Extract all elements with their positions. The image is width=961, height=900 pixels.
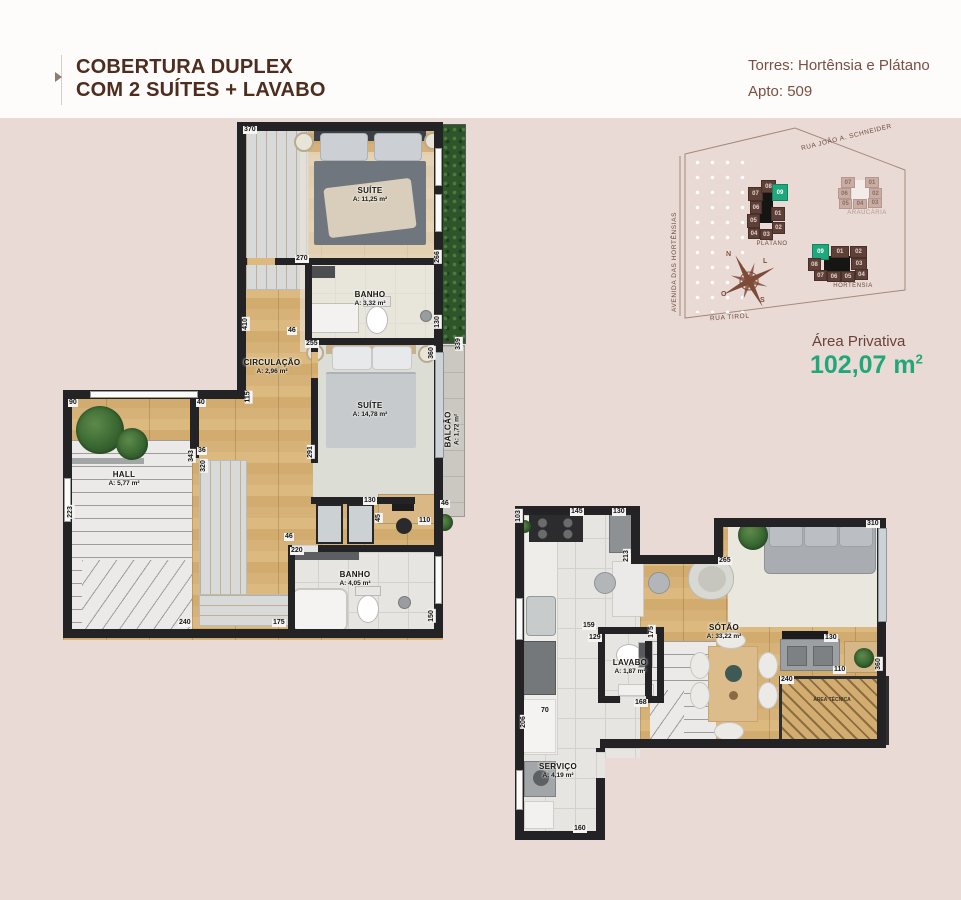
wardrobe-glass-panel (347, 504, 374, 544)
room-area: A: 1,72 m² (454, 394, 462, 464)
title-marker-arrow-icon (55, 72, 62, 82)
sofa (764, 520, 876, 574)
room-name: CIRCULAÇÃO (233, 358, 311, 368)
dim-label: 46 (287, 327, 297, 335)
dim-label: 310 (866, 520, 880, 528)
room-area: A: 4,05 m² (322, 580, 388, 588)
dim-label: 130 (612, 508, 626, 516)
dim-label: 115 (245, 390, 253, 403)
wall (600, 739, 886, 748)
room-area: A: 2,96 m² (233, 368, 311, 376)
platano-label: PLÁTANO (742, 241, 802, 247)
room-name: SUÍTE (330, 186, 410, 196)
door-opening (247, 258, 275, 265)
compass-rose-icon (718, 250, 780, 312)
dining-chair (690, 652, 710, 679)
room-name: SERVIÇO (526, 762, 590, 772)
room-label-servico: SERVIÇO A: 4,19 m² (526, 762, 590, 781)
banho2-shower-head (398, 596, 411, 609)
araucaria-label: ARAUCÁRIA (838, 210, 896, 216)
wall (288, 545, 295, 635)
room-area: A: 5,77 m² (92, 480, 156, 488)
dim-label: 129 (588, 634, 602, 642)
room-label-banho2: BANHO A: 4,05 m² (322, 570, 388, 589)
compass-s: S (760, 297, 765, 304)
map-unit-araucaria-07: 07 (841, 177, 855, 188)
room-name: BANHO (332, 290, 408, 300)
map-unit-platano-04: 04 (748, 228, 760, 239)
dim-label: 265 (718, 557, 732, 565)
map-unit-araucaria-01: 01 (865, 177, 879, 188)
room-area: A: 1,87 m² (597, 668, 663, 676)
map-unit-araucaria-04: 04 (853, 199, 867, 209)
dim-label: 240 (178, 619, 192, 627)
fruit-bowl (725, 665, 742, 682)
dim-label: 343 (188, 449, 196, 463)
map-unit-araucaria-06: 06 (838, 188, 851, 199)
dim-label: 240 (780, 676, 794, 684)
dim-label: 410 (242, 317, 250, 331)
dining-chair (758, 682, 778, 709)
dim-label: 168 (634, 699, 648, 707)
dim-label: 206 (520, 715, 528, 729)
dim-label: 110 (833, 666, 846, 674)
room-name: LAVABO (597, 658, 663, 668)
suite1-pillow (374, 133, 422, 161)
laundry-tank (524, 801, 554, 829)
dim-label: 45 (375, 513, 383, 523)
wall (714, 518, 886, 527)
suite2-bed (326, 342, 416, 446)
area-privativa-label: Área Privativa (812, 333, 905, 350)
dim-label: 255 (305, 340, 319, 348)
dim-label: 175 (272, 619, 286, 627)
room-name: HALL (92, 470, 156, 480)
dim-label: 360 (428, 346, 436, 360)
map-unit-hortensia-06: 06 (827, 271, 841, 282)
dim-label: 213 (623, 549, 631, 563)
room-label-suite1: SUÍTE A: 11,25 m² (330, 186, 410, 205)
dim-label: 270 (295, 255, 309, 263)
banho1-shower-drain (420, 310, 432, 322)
window (516, 598, 523, 640)
dim-label: 339 (455, 337, 463, 351)
dim-label: 40 (196, 399, 206, 407)
street-label-left: AVENIDA DAS HORTÊNSIAS (671, 212, 678, 312)
banho2-bathtub (292, 588, 348, 632)
suite1-pillow (320, 133, 368, 161)
room-label-banho1: BANHO A: 3,32 m² (332, 290, 408, 309)
room-label-sotao: SÓTÃO A: 33,22 m² (692, 623, 756, 642)
planter-greenery (440, 124, 466, 344)
wall (515, 831, 605, 840)
map-unit-platano-06: 06 (750, 201, 762, 214)
page-title-line1: COBERTURA DUPLEX (76, 56, 326, 79)
tv (782, 631, 828, 639)
side-table-plant (854, 648, 874, 668)
map-unit-platano-01: 01 (771, 207, 785, 221)
hall-plant (116, 428, 148, 460)
room-label-hall: HALL A: 5,77 m² (92, 470, 156, 489)
compass-o: O (721, 291, 726, 298)
room-area: A: 14,78 m² (331, 411, 409, 419)
stairs-upper-winder (82, 560, 192, 632)
map-unit-hortensia-05: 05 (841, 271, 855, 282)
dim-label: 159 (582, 622, 596, 630)
dim-label: 320 (200, 459, 208, 473)
kitchen-sink (526, 596, 556, 636)
page-title-line2: COM 2 SUÍTES + LAVABO (76, 79, 326, 102)
wall (305, 338, 439, 345)
dim-label: 36 (197, 447, 207, 455)
hortensia-label: HORTÊNSIA (822, 283, 884, 289)
room-label-circulacao: CIRCULAÇÃO A: 2,96 m² (233, 358, 311, 377)
dim-label: 145 (570, 508, 584, 516)
dim-label: 370 (243, 126, 257, 134)
stove-cooktop (529, 514, 583, 542)
map-unit-platano-05: 05 (747, 214, 760, 228)
map-unit-hortensia-07: 07 (814, 270, 827, 281)
dining-table (708, 646, 758, 722)
window (435, 194, 442, 232)
table-decor (729, 691, 738, 700)
compass-n: N (726, 251, 731, 258)
map-unit-platano-02: 02 (772, 222, 785, 234)
dim-label: 103 (515, 509, 523, 523)
map-unit-araucaria-03: 03 (868, 198, 882, 208)
room-label-suite2: SUÍTE A: 14,78 m² (331, 401, 409, 420)
room-name: SUÍTE (331, 401, 409, 411)
hatched-area (779, 676, 889, 745)
dining-chair (690, 682, 710, 709)
breakfast-chair (648, 572, 670, 594)
room-name: BANHO (322, 570, 388, 580)
dim-label: 130 (363, 497, 377, 505)
dim-label: 266 (434, 250, 442, 264)
map-unit-hortensia-02: 02 (850, 246, 867, 258)
map-unit-hortensia-04: 04 (855, 269, 868, 280)
room-name: BALCÃO (444, 394, 454, 464)
wardrobe-glass-panel (316, 504, 343, 544)
area-value-sup: 2 (916, 352, 923, 367)
dim-label: 360 (875, 657, 883, 671)
living-glass-door (878, 528, 887, 622)
dim-label: 70 (540, 707, 550, 715)
area-value-text: 102,07 m (810, 351, 916, 379)
room-label-lavabo: LAVABO A: 1,87 m² (597, 658, 663, 677)
wall (631, 555, 723, 564)
window (435, 556, 442, 604)
desk-chair (396, 518, 412, 534)
room-label-balcao: BALCÃO A: 1,72 m² (444, 394, 463, 464)
dim-label: 46 (284, 533, 294, 541)
sofa-cushion (804, 525, 838, 547)
window (435, 148, 442, 186)
room-area: A: 3,32 m² (332, 300, 408, 308)
compass-l: L (763, 258, 767, 265)
area-privativa-value: 102,07 m2 (810, 351, 923, 380)
dim-label: 150 (428, 609, 436, 623)
door-opening (596, 752, 605, 778)
header-band: COBERTURA DUPLEX COM 2 SUÍTES + LAVABO T… (0, 0, 961, 118)
wall (305, 258, 312, 345)
suite2-pillow (332, 346, 372, 370)
tv-rack-door (787, 646, 807, 666)
dim-label: 46 (440, 500, 450, 508)
tower-info: Torres: Hortênsia e Plátano (748, 57, 930, 74)
room-area: A: 33,22 m² (692, 633, 756, 641)
breakfast-chair (594, 572, 616, 594)
banho1-toilet (366, 306, 388, 334)
dim-label: 130 (434, 315, 442, 329)
hatched-area-label: ÁREA TÉCNICA (800, 697, 864, 703)
apto-info: Apto: 509 (748, 83, 812, 100)
wall (237, 122, 443, 131)
window (90, 391, 198, 398)
wall (63, 629, 443, 638)
suite1-nightstand (294, 132, 314, 152)
map-unit-araucaria-05: 05 (839, 199, 852, 209)
breakfast-table (612, 561, 644, 617)
dim-label: 223 (67, 505, 75, 519)
map-unit-platano-09-highlight: 09 (772, 184, 788, 201)
fridge (522, 641, 556, 695)
dining-chair (758, 652, 778, 679)
banho2-toilet (357, 595, 379, 623)
suite2-pillow (372, 346, 412, 370)
dim-label: 110 (418, 517, 431, 525)
page: COBERTURA DUPLEX COM 2 SUÍTES + LAVABO T… (0, 0, 961, 900)
map-unit-hortensia-01: 01 (831, 246, 849, 258)
sofa-cushion (839, 525, 873, 547)
tv-rack-door (813, 646, 833, 666)
tv-rack (780, 639, 840, 671)
hall-closet-horizontal (199, 594, 301, 626)
page-title: COBERTURA DUPLEX COM 2 SUÍTES + LAVABO (76, 56, 326, 102)
dim-label: 220 (290, 547, 304, 555)
room-area: A: 11,25 m² (330, 196, 410, 204)
dim-label: 130 (824, 634, 838, 642)
sofa-cushion (769, 525, 803, 547)
dim-label: 90 (68, 399, 78, 407)
dim-label: 160 (573, 825, 587, 833)
dim-label: 175 (648, 625, 656, 639)
window (516, 770, 523, 810)
dim-label: 291 (307, 445, 315, 459)
room-area: A: 4,19 m² (526, 772, 590, 780)
room-name: SÓTÃO (692, 623, 756, 633)
door-opening (311, 352, 318, 378)
armchair-seat (698, 566, 726, 592)
